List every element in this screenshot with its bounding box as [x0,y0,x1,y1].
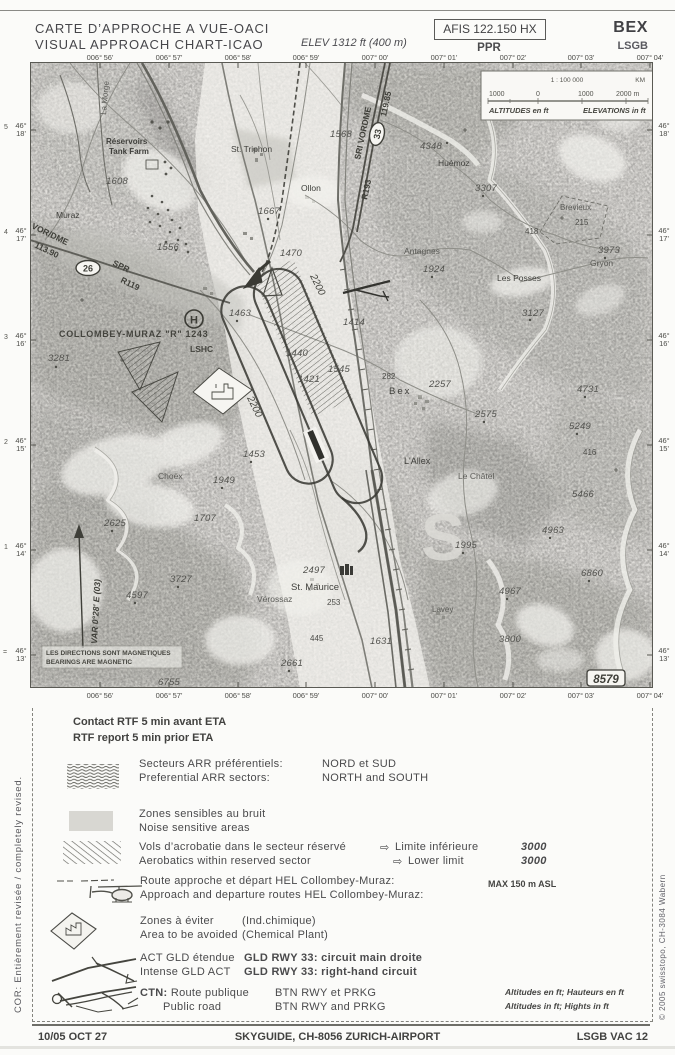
svg-text:1470: 1470 [280,248,302,259]
svg-text:33: 33 [372,128,384,140]
svg-text:COLLOMBEY-MURAZ "R" 1243: COLLOMBEY-MURAZ "R" 1243 [59,329,208,339]
svg-text:416: 416 [583,448,597,457]
svg-text:BEARINGS ARE MAGNETIC: BEARINGS ARE MAGNETIC [46,659,132,666]
svg-text:LES DIRECTIONS SONT MAGNETIQUE: LES DIRECTIONS SONT MAGNETIQUES [46,650,171,657]
svg-text:1000: 1000 [578,91,594,98]
svg-text:2497: 2497 [302,565,325,576]
svg-text:3307: 3307 [475,183,497,194]
svg-text:Les Posses: Les Posses [497,273,541,283]
svg-text:26: 26 [83,264,93,274]
svg-text:2575: 2575 [474,409,497,420]
svg-text:6860: 6860 [581,568,603,579]
svg-text:L'Allex: L'Allex [404,456,431,466]
svg-text:4731: 4731 [577,384,599,395]
svg-text:St. Maurice: St. Maurice [291,582,339,593]
svg-text:1608: 1608 [106,176,128,187]
svg-text:Brevieux: Brevieux [560,203,591,212]
svg-text:2625: 2625 [103,518,126,529]
svg-text:3727: 3727 [170,574,192,585]
svg-text:ELEVATIONS in ft: ELEVATIONS in ft [583,106,646,115]
svg-text:2257: 2257 [428,379,451,390]
svg-text:253: 253 [327,598,341,607]
svg-text:3127: 3127 [522,308,544,319]
svg-text:1924: 1924 [423,264,445,275]
svg-text:215: 215 [575,218,589,227]
svg-text:4597: 4597 [126,590,148,601]
svg-text:3281: 3281 [48,353,70,364]
svg-text:LSHC: LSHC [190,344,213,354]
svg-text:H: H [190,315,198,327]
svg-text:Ollon: Ollon [301,183,321,193]
svg-text:8579: 8579 [593,674,619,686]
svg-text:Bex: Bex [389,386,411,397]
svg-text:1545: 1545 [328,364,350,375]
svg-text:Choëx: Choëx [158,471,183,481]
svg-text:1000: 1000 [489,91,505,98]
svg-text:Muraz: Muraz [56,210,80,220]
svg-text:1949: 1949 [213,475,235,486]
svg-text:2000 m: 2000 m [616,91,640,98]
svg-text:1421: 1421 [298,374,320,385]
svg-text:0: 0 [536,91,540,98]
svg-text:3800: 3800 [499,634,521,645]
svg-text:4963: 4963 [542,525,564,536]
svg-text:S: S [421,500,465,574]
svg-text:1568: 1568 [330,129,352,140]
svg-text:Vérossaz: Vérossaz [257,594,292,604]
svg-text:1440: 1440 [286,348,308,359]
svg-text:1631: 1631 [370,636,392,647]
svg-text:KM: KM [635,77,645,84]
svg-text:St. Triphon: St. Triphon [231,144,272,154]
svg-text:5466: 5466 [572,489,594,500]
svg-text:Lavey: Lavey [432,605,453,614]
svg-text:1453: 1453 [243,449,265,460]
svg-text:5249: 5249 [569,421,591,432]
svg-text:Le Châtel: Le Châtel [458,471,494,481]
svg-text:445: 445 [310,634,324,643]
svg-text:1707: 1707 [194,513,216,524]
svg-text:1 : 100 000: 1 : 100 000 [551,77,584,84]
svg-text:3973: 3973 [598,245,620,256]
svg-text:4967: 4967 [499,586,521,597]
svg-text:Antagnes: Antagnes [404,246,440,256]
svg-text:1667: 1667 [258,206,280,217]
svg-text:282: 282 [382,372,396,381]
svg-text:Huémoz: Huémoz [438,158,470,168]
svg-text:2661: 2661 [280,658,303,669]
svg-text:1463: 1463 [229,308,251,319]
svg-text:1556: 1556 [157,242,179,253]
svg-text:1995: 1995 [455,540,477,551]
svg-text:Gryon: Gryon [590,258,613,268]
svg-text:1414: 1414 [343,317,365,328]
svg-text:4348: 4348 [420,141,442,152]
svg-text:ALTITUDES en ft: ALTITUDES en ft [488,106,549,115]
svg-text:Réservoirs: Réservoirs [106,137,148,146]
svg-text:Tank Farm: Tank Farm [109,147,149,156]
svg-text:418: 418 [525,227,539,236]
